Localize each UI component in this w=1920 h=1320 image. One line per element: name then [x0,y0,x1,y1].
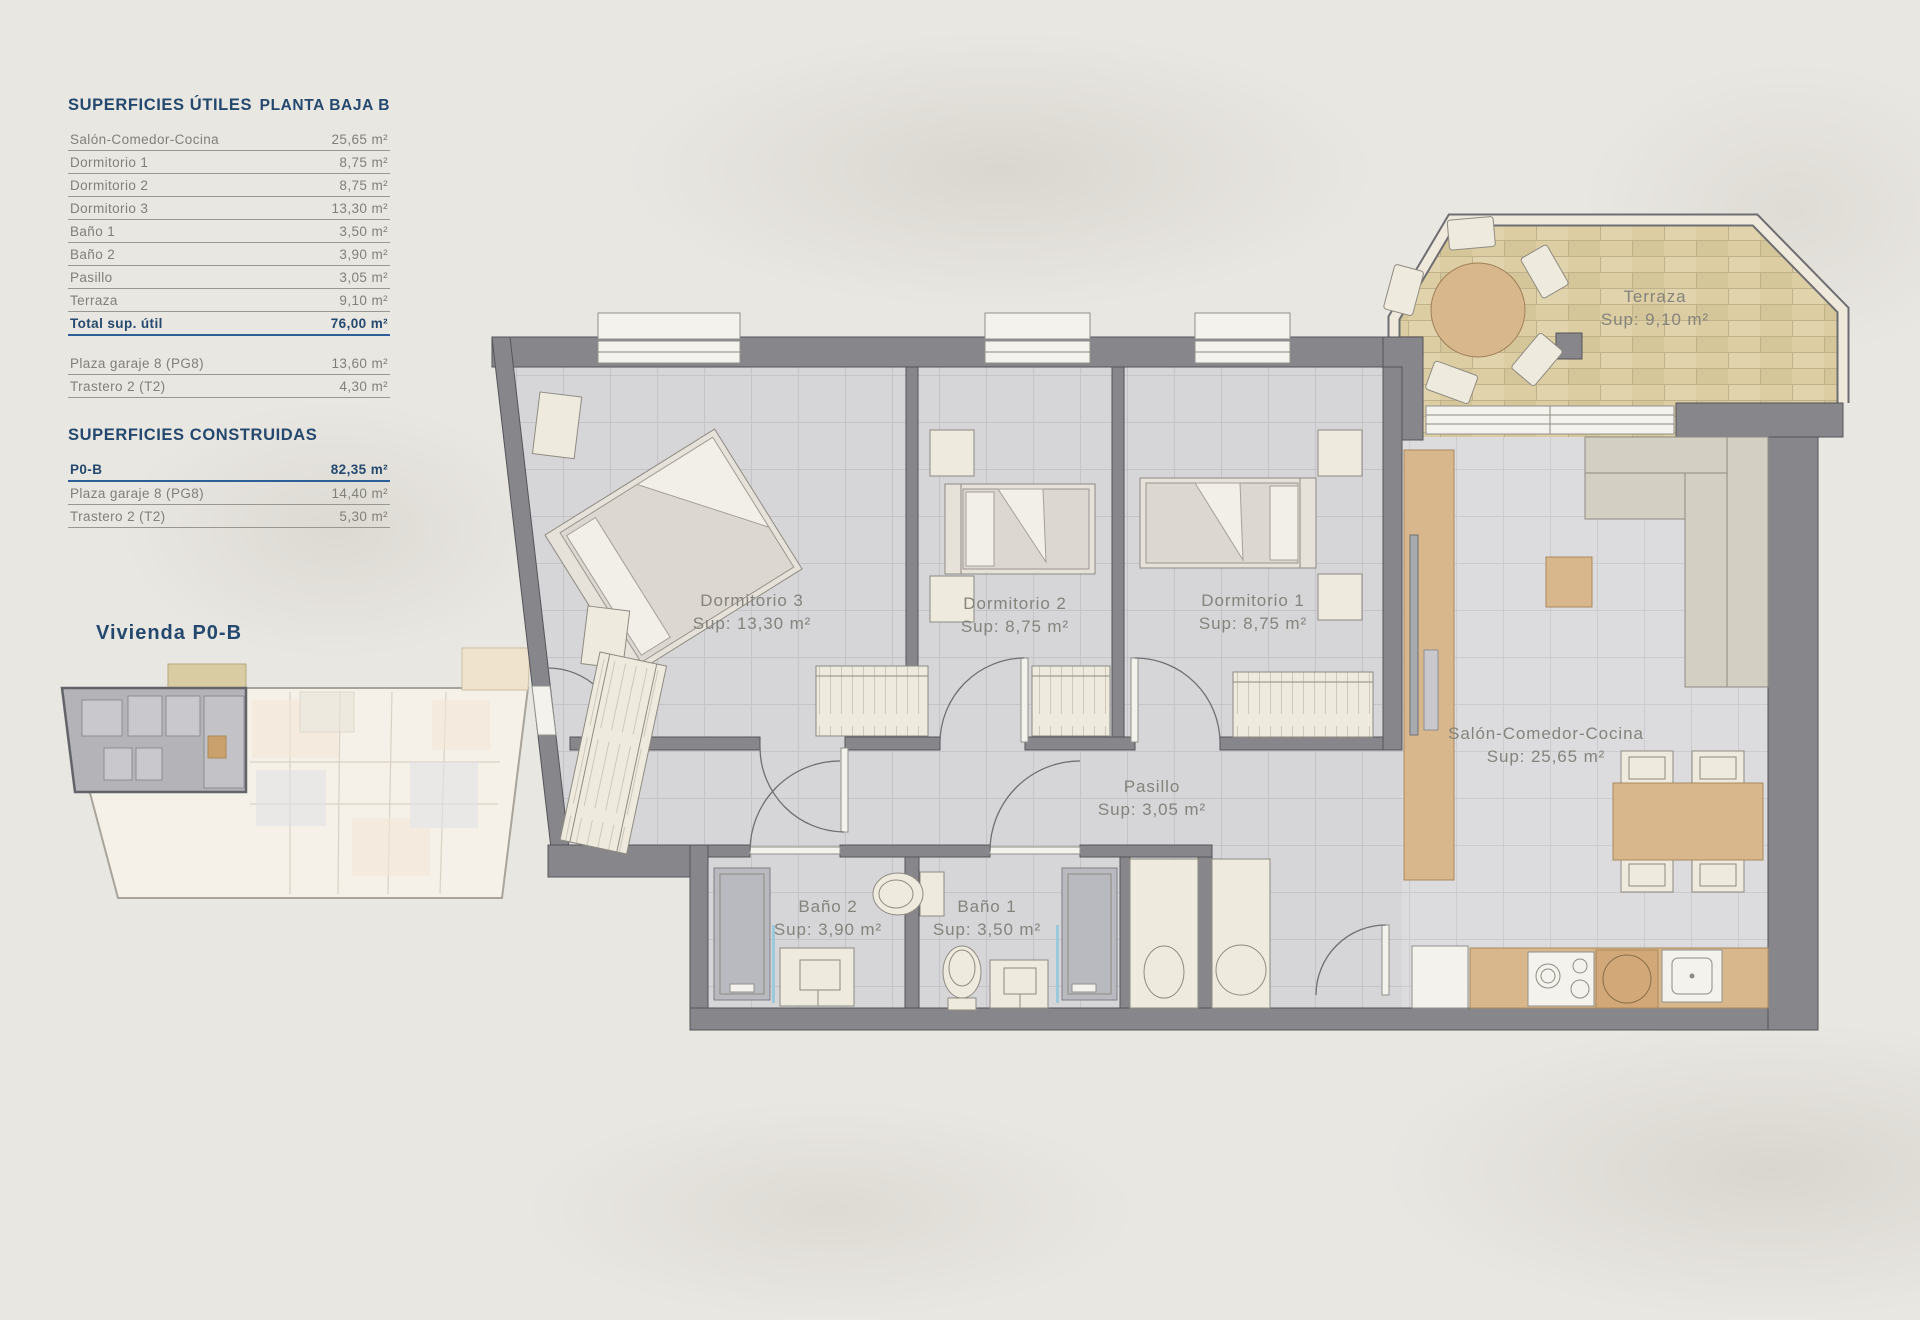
kitchen-counter [1412,946,1768,1008]
row-value: 76,00 m² [331,316,388,331]
room-label-bano-2: Baño 2 Sup: 3,90 m² [774,895,882,941]
row-value: 5,30 m² [339,509,388,524]
room-area: Sup: 3,05 m² [1098,798,1206,821]
room-name: Terraza [1601,285,1709,308]
row-label: Pasillo [70,270,113,285]
room-area: Sup: 8,75 m² [961,615,1069,638]
table-row: Dormitorio 18,75 m² [68,151,390,174]
row-label: Plaza garaje 8 (PG8) [70,356,204,371]
table-row: Dormitorio 28,75 m² [68,174,390,197]
room-area: Sup: 25,65 m² [1448,745,1644,768]
room-area: Sup: 3,50 m² [933,918,1041,941]
utility-closet [1130,859,1198,1008]
room-label-terraza: Terraza Sup: 9,10 m² [1601,285,1709,331]
row-value: 3,05 m² [339,270,388,285]
table-row: Terraza9,10 m² [68,289,390,312]
room-area: Sup: 3,90 m² [774,918,882,941]
total-row: Total sup. útil76,00 m² [68,312,390,336]
room-area: Sup: 8,75 m² [1199,612,1307,635]
table-row: Trastero 2 (T2)5,30 m² [68,505,390,528]
room-name: Baño 1 [933,895,1041,918]
utiles-header: SUPERFICIES ÚTILES PLANTA BAJA B [68,96,390,115]
bed-single-dormitorio2 [945,484,1095,574]
side-table [1546,557,1592,607]
row-value: 14,40 m² [332,486,388,501]
room-name: Pasillo [1098,775,1206,798]
row-value: 25,65 m² [332,132,388,147]
sink-bano2 [780,948,854,1006]
table-row: Plaza garaje 8 (PG8)14,40 m² [68,482,390,505]
room-label-salon: Salón-Comedor-Cocina Sup: 25,65 m² [1448,722,1644,768]
row-label: Dormitorio 1 [70,155,148,170]
row-label: Terraza [70,293,118,308]
shower-bano2 [714,868,775,1003]
row-value: 3,90 m² [339,247,388,262]
room-label-pasillo: Pasillo Sup: 3,05 m² [1098,775,1206,821]
room-area: Sup: 13,30 m² [693,612,811,635]
row-value: 13,60 m² [332,356,388,371]
construidas-section: SUPERFICIES CONSTRUIDAS P0-B82,35 m² Pla… [68,426,390,528]
wardrobe-dormitorio1 [1233,672,1373,737]
row-label: Trastero 2 (T2) [70,509,166,524]
shower-bano1 [1056,868,1117,1003]
table-row: Salón-Comedor-Cocina25,65 m² [68,128,390,151]
nightstand [1318,430,1362,476]
tv-unit [1404,450,1454,880]
table-row: Trastero 2 (T2)4,30 m² [68,375,390,398]
row-label: Dormitorio 3 [70,201,148,216]
terrace-round-table [1431,263,1525,357]
total-row: P0-B82,35 m² [68,458,390,482]
mini-terraza [168,664,246,690]
row-value: 8,75 m² [339,155,388,170]
room-name: Dormitorio 2 [961,592,1069,615]
nightstand [532,392,581,459]
row-value: 9,10 m² [339,293,388,308]
dining-table [1613,783,1763,860]
row-label: P0-B [70,462,102,477]
utiles-floor: PLANTA BAJA B [260,97,390,115]
room-name: Dormitorio 1 [1199,589,1307,612]
fridge [1412,946,1468,1008]
table-row: Baño 13,50 m² [68,220,390,243]
room-name: Salón-Comedor-Cocina [1448,722,1644,745]
row-value: 3,50 m² [339,224,388,239]
room-label-bano-1: Baño 1 Sup: 3,50 m² [933,895,1041,941]
room-name: Baño 2 [774,895,882,918]
row-value: 8,75 m² [339,178,388,193]
wardrobe-dormitorio2 [1032,666,1110,736]
row-label: Baño 2 [70,247,115,262]
row-label: Plaza garaje 8 (PG8) [70,486,204,501]
row-label: Total sup. útil [70,316,163,331]
wardrobe-dormitorio3 [816,666,928,736]
tall-cabinet-washer [1212,859,1270,1008]
row-value: 82,35 m² [331,462,388,477]
nightstand [930,430,974,476]
construidas-table: P0-B82,35 m² Plaza garaje 8 (PG8)14,40 m… [68,458,390,528]
table-row: Plaza garaje 8 (PG8)13,60 m² [68,352,390,375]
toilet-bano1 [943,946,981,1010]
table-row: Baño 23,90 m² [68,243,390,266]
row-value: 13,30 m² [332,201,388,216]
row-label: Baño 1 [70,224,115,239]
construidas-title: SUPERFICIES CONSTRUIDAS [68,426,390,445]
room-label-dormitorio-1: Dormitorio 1 Sup: 8,75 m² [1199,589,1307,635]
mini-plan [62,648,530,898]
room-label-dormitorio-2: Dormitorio 2 Sup: 8,75 m² [961,592,1069,638]
area-tables: SUPERFICIES ÚTILES PLANTA BAJA B Salón-C… [68,96,390,528]
table-row: Dormitorio 313,30 m² [68,197,390,220]
row-value: 4,30 m² [339,379,388,394]
room-name: Dormitorio 3 [693,589,811,612]
room-area: Sup: 9,10 m² [1601,308,1709,331]
bed-single-dormitorio1 [1140,478,1316,568]
row-label: Trastero 2 (T2) [70,379,166,394]
utiles-table: Salón-Comedor-Cocina25,65 m² Dormitorio … [68,128,390,398]
nightstand [1318,574,1362,620]
room-label-dormitorio-3: Dormitorio 3 Sup: 13,30 m² [693,589,811,635]
row-label: Salón-Comedor-Cocina [70,132,219,147]
row-label: Dormitorio 2 [70,178,148,193]
plan-sheet-page: { "colors": { "background": "#e9e7e2", "… [0,0,1920,1280]
utiles-title: SUPERFICIES ÚTILES [68,96,252,115]
oven [1596,950,1658,1008]
sink-bano1 [990,960,1048,1008]
table-row: Pasillo3,05 m² [68,266,390,289]
overview-unit-label: Vivienda P0-B [96,622,242,645]
